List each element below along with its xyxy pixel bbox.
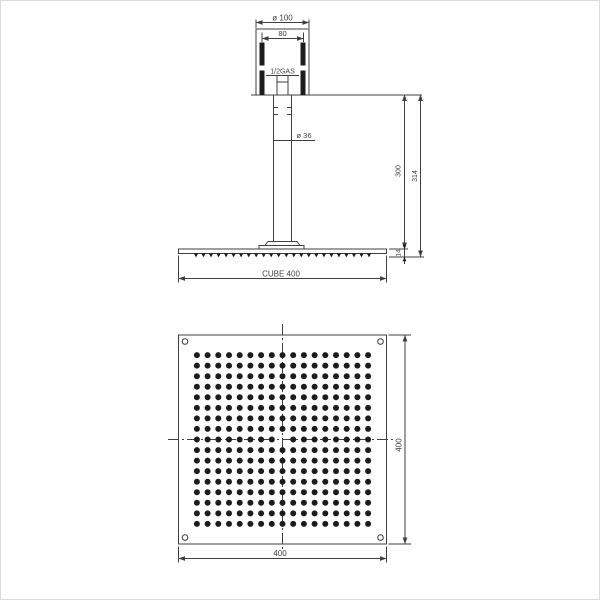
dim-plan-depth-label: 400 (395, 438, 404, 452)
nozzle-dot (280, 352, 286, 358)
nozzle-dot (312, 521, 318, 527)
nozzle-dot (215, 489, 221, 495)
nozzle-dot (226, 500, 232, 506)
nozzle-dot (322, 426, 328, 432)
nozzle-dot (258, 363, 264, 369)
nozzle-dot (290, 373, 296, 379)
nozzle-dot (194, 352, 200, 358)
nozzle-dot (365, 510, 371, 516)
nozzle-dot (322, 489, 328, 495)
nozzle-dot (205, 437, 211, 443)
nozzle-dot (290, 415, 296, 421)
nozzle-dot (344, 468, 350, 474)
nozzle-dot (301, 415, 307, 421)
nozzle-dot (312, 500, 318, 506)
solid-fills (194, 43, 407, 527)
nozzle-dot (247, 479, 253, 485)
nozzle-dot (269, 458, 275, 464)
nozzle-dot (290, 363, 296, 369)
nozzle-dot (322, 447, 328, 453)
nozzle-dot (333, 468, 339, 474)
nozzle-dot (333, 521, 339, 527)
nozzle-dot (290, 521, 296, 527)
nozzle-dot (290, 510, 296, 516)
nozzle-dot (333, 447, 339, 453)
nozzle-dot (354, 437, 360, 443)
nozzle-dot (269, 521, 275, 527)
nozzle-tooth (201, 254, 205, 258)
nozzle-dot (194, 500, 200, 506)
centerlines (168, 324, 395, 552)
nozzle-teeth-row (194, 254, 371, 258)
nozzle-dot (312, 437, 318, 443)
dim-overall-height-label: 314 (412, 170, 419, 182)
nozzle-dot (344, 415, 350, 421)
nozzle-dot (226, 447, 232, 453)
nozzle-dot (280, 415, 286, 421)
nozzle-dot (269, 447, 275, 453)
nozzle-dot (205, 405, 211, 411)
nozzle-dot (247, 521, 253, 527)
nozzle-tooth (194, 254, 198, 258)
nozzle-dot (322, 415, 328, 421)
nozzle-dot (290, 447, 296, 453)
nozzle-dot (215, 415, 221, 421)
nozzle-dot (344, 405, 350, 411)
nozzle-dot (365, 447, 371, 453)
nozzle-dot (322, 510, 328, 516)
nozzle-dot (290, 437, 296, 443)
nozzle-tooth (247, 254, 251, 258)
nozzle-dot (290, 458, 296, 464)
nozzle-dot (226, 479, 232, 485)
nozzle-dot (258, 373, 264, 379)
nozzle-dot (237, 373, 243, 379)
nozzle-dot (205, 426, 211, 432)
nozzle-tooth (299, 254, 303, 258)
nozzle-dot (226, 426, 232, 432)
nozzle-dot (247, 437, 253, 443)
nozzle-dot (194, 426, 200, 432)
nozzle-dot (312, 426, 318, 432)
nozzle-dot (258, 489, 264, 495)
nozzle-dot (365, 394, 371, 400)
nozzle-dot (333, 373, 339, 379)
nozzle-dot (215, 500, 221, 506)
nozzle-dot (226, 394, 232, 400)
nozzle-dot (247, 405, 253, 411)
nozzle-dot (344, 521, 350, 527)
nozzle-dot (269, 352, 275, 358)
nozzle-dot (237, 479, 243, 485)
nozzle-dot (205, 500, 211, 506)
nozzle-dot (194, 521, 200, 527)
nozzle-dot (194, 479, 200, 485)
nozzle-dot (258, 479, 264, 485)
nozzle-dot (280, 468, 286, 474)
nozzle-dot (301, 458, 307, 464)
nozzle-dot (280, 489, 286, 495)
nozzle-dot (290, 500, 296, 506)
nozzle-dot (269, 394, 275, 400)
nozzle-dot (322, 352, 328, 358)
product-name-label: CUBE 400 (262, 270, 300, 279)
nozzle-dot (237, 458, 243, 464)
nozzle-dot (354, 479, 360, 485)
corner-screw-hole (378, 535, 384, 541)
nozzle-dot (215, 352, 221, 358)
shower-plate-side (179, 249, 387, 254)
nozzle-dot (365, 426, 371, 432)
nozzle-dot (226, 373, 232, 379)
nozzle-dot (194, 415, 200, 421)
nozzle-tooth (329, 254, 333, 258)
nozzle-tooth (262, 254, 266, 258)
nozzle-dot (215, 363, 221, 369)
nozzle-dot (237, 426, 243, 432)
nozzle-dot (226, 352, 232, 358)
nozzle-dot (312, 384, 318, 390)
nozzle-dot (237, 394, 243, 400)
nozzle-dot (280, 510, 286, 516)
nozzle-dot (354, 468, 360, 474)
nozzle-dot (258, 394, 264, 400)
nozzle-dot (290, 489, 296, 495)
nozzle-tooth (217, 254, 221, 258)
nozzle-dot (215, 458, 221, 464)
nozzle-dot (269, 437, 275, 443)
nozzle-dot (237, 489, 243, 495)
nozzle-dot (301, 437, 307, 443)
nozzle-dot (226, 384, 232, 390)
nozzle-dot (280, 373, 286, 379)
nozzle-dot (301, 384, 307, 390)
nozzle-dot (333, 479, 339, 485)
nozzle-tooth (367, 254, 371, 258)
nozzle-dot (247, 363, 253, 369)
nozzle-dot (194, 384, 200, 390)
nozzle-dot (322, 394, 328, 400)
dim-thickness-label: 14 (396, 249, 403, 257)
nozzle-dot (269, 426, 275, 432)
nozzle-dot (344, 352, 350, 358)
nozzle-dot (365, 363, 371, 369)
nozzle-dot (312, 489, 318, 495)
nozzle-dot (247, 510, 253, 516)
nozzle-dot (344, 426, 350, 432)
nozzle-dot (269, 479, 275, 485)
nozzle-dot (194, 363, 200, 369)
nozzle-dot (215, 447, 221, 453)
nozzle-dot (226, 510, 232, 516)
nozzle-dot (322, 468, 328, 474)
nozzle-dot (237, 363, 243, 369)
nozzle-dot (205, 352, 211, 358)
technical-drawing-page: ø 100 80 1/2GAS ø 36 300 314 14 CUBE 400… (0, 0, 600, 600)
nozzle-dot (269, 510, 275, 516)
nozzle-dot (258, 510, 264, 516)
nozzle-dot (322, 405, 328, 411)
nozzle-dot (312, 405, 318, 411)
nozzle-dot (205, 521, 211, 527)
nozzle-dot (226, 489, 232, 495)
nozzle-dot (205, 415, 211, 421)
nozzle-dot (365, 500, 371, 506)
nozzle-dot (301, 510, 307, 516)
nozzle-dot (258, 415, 264, 421)
nozzle-dot (365, 373, 371, 379)
nozzle-dot (215, 394, 221, 400)
nozzle-dot (258, 468, 264, 474)
nozzle-dot (301, 405, 307, 411)
nozzle-dot (354, 447, 360, 453)
nozzle-dot (258, 426, 264, 432)
nozzle-dot (333, 489, 339, 495)
nozzle-dot (365, 415, 371, 421)
nozzle-dot (333, 510, 339, 516)
nozzle-dot (312, 447, 318, 453)
nozzle-tooth (254, 254, 258, 258)
nozzle-dot (354, 373, 360, 379)
nozzle-dot (247, 500, 253, 506)
nozzle-dot (322, 500, 328, 506)
nozzle-dot (237, 384, 243, 390)
nozzle-dot (301, 373, 307, 379)
nozzle-dot (290, 426, 296, 432)
nozzle-dot (344, 384, 350, 390)
nozzle-dot (247, 426, 253, 432)
nozzle-dot (247, 352, 253, 358)
nozzle-dot (280, 394, 286, 400)
nozzle-dot (333, 405, 339, 411)
nozzle-dot (194, 468, 200, 474)
nozzle-dot (258, 352, 264, 358)
nozzle-dot (365, 458, 371, 464)
nozzle-dot (312, 479, 318, 485)
nozzle-dot (354, 405, 360, 411)
nozzle-dot (237, 521, 243, 527)
nozzle-dot (269, 468, 275, 474)
nozzle-dot (333, 363, 339, 369)
nozzle-dot (354, 489, 360, 495)
nozzle-dot (237, 405, 243, 411)
nozzle-dot (205, 384, 211, 390)
nozzle-dot (205, 468, 211, 474)
nozzle-dot (322, 373, 328, 379)
nozzle-dot (280, 384, 286, 390)
nozzle-dot (258, 458, 264, 464)
cad-drawing-canvas: ø 100 80 1/2GAS ø 36 300 314 14 CUBE 400… (0, 0, 600, 600)
nozzle-dot (205, 394, 211, 400)
nozzle-dot (215, 510, 221, 516)
nozzle-dot (333, 415, 339, 421)
nozzle-tooth (337, 254, 341, 258)
nozzle-dot (365, 352, 371, 358)
nozzle-dot (354, 521, 360, 527)
dim-top-diameter-label: ø 100 (272, 14, 293, 23)
nozzle-dot (237, 437, 243, 443)
image-border (1, 1, 600, 600)
nozzle-dot (247, 394, 253, 400)
nozzle-dot (354, 458, 360, 464)
nozzle-dot (354, 394, 360, 400)
nozzle-tooth (284, 254, 288, 258)
nozzle-tooth (277, 254, 281, 258)
nozzle-dot (280, 458, 286, 464)
nozzle-dot (247, 447, 253, 453)
nozzle-dot (344, 363, 350, 369)
nozzle-dot (247, 458, 253, 464)
nozzle-dot (205, 447, 211, 453)
nozzle-dot (322, 458, 328, 464)
nozzle-dot (312, 373, 318, 379)
nozzle-dot (322, 521, 328, 527)
nozzle-dot (344, 394, 350, 400)
nozzle-dot (312, 468, 318, 474)
nozzle-dot (237, 447, 243, 453)
corner-screw-hole (378, 339, 384, 345)
nozzle-dot (237, 415, 243, 421)
nozzle-dot (344, 479, 350, 485)
nozzle-dot (354, 384, 360, 390)
nozzle-dot (258, 437, 264, 443)
nozzle-dot (354, 363, 360, 369)
nozzle-dot (333, 394, 339, 400)
nozzle-dot (205, 363, 211, 369)
nozzle-tooth (307, 254, 311, 258)
nozzle-dot (344, 510, 350, 516)
nozzle-dot (247, 489, 253, 495)
nozzle-dot (226, 437, 232, 443)
nozzle-tooth (344, 254, 348, 258)
nozzle-dot (290, 405, 296, 411)
nozzle-dot (269, 384, 275, 390)
nozzle-tooth (239, 254, 243, 258)
nozzle-dot (333, 458, 339, 464)
nozzle-dot (354, 352, 360, 358)
nozzle-tooth (359, 254, 363, 258)
nozzle-dot (301, 352, 307, 358)
nozzle-dot (322, 479, 328, 485)
nozzle-tooth (209, 254, 213, 258)
nozzle-dot (344, 437, 350, 443)
nozzle-tooth (322, 254, 326, 258)
nozzle-dot (247, 415, 253, 421)
nozzle-dot (215, 437, 221, 443)
nozzle-dot (312, 394, 318, 400)
nozzle-dot (194, 458, 200, 464)
nozzle-tooth (224, 254, 228, 258)
nozzle-dot (301, 426, 307, 432)
nozzle-dot (301, 500, 307, 506)
nozzle-dot (194, 510, 200, 516)
nozzle-tooth (314, 254, 318, 258)
nozzle-dot (215, 468, 221, 474)
nozzle-dot (344, 373, 350, 379)
nozzle-dot (333, 352, 339, 358)
nozzle-dot (365, 489, 371, 495)
nozzle-dot (194, 405, 200, 411)
nozzle-dot (365, 384, 371, 390)
nozzle-dot (290, 468, 296, 474)
thread-size-label: 1/2GAS (270, 69, 295, 76)
nozzle-dot (344, 500, 350, 506)
nozzle-dot (301, 447, 307, 453)
nozzle-dot (290, 384, 296, 390)
supply-pipe (274, 95, 292, 242)
nozzle-dot (354, 500, 360, 506)
nozzle-dot (290, 394, 296, 400)
nozzle-dot (205, 510, 211, 516)
nozzle-dot (237, 510, 243, 516)
nozzle-dot (258, 521, 264, 527)
nozzle-dot (290, 352, 296, 358)
nozzle-dot (301, 468, 307, 474)
dim-plan-width-label: 400 (273, 549, 287, 558)
nozzle-dot (280, 500, 286, 506)
nozzle-dot (258, 500, 264, 506)
nozzle-dot (258, 447, 264, 453)
nozzle-dot (205, 489, 211, 495)
nozzle-dot (344, 447, 350, 453)
nozzle-dot (312, 510, 318, 516)
nozzle-dot (226, 405, 232, 411)
nozzle-dot (226, 521, 232, 527)
nozzle-dot (354, 426, 360, 432)
nozzle-dot (215, 373, 221, 379)
nozzle-dot (237, 352, 243, 358)
nozzle-dot (365, 468, 371, 474)
nozzle-dot (322, 363, 328, 369)
nozzle-dot (344, 489, 350, 495)
dim-drop-height-label: 300 (396, 165, 403, 177)
nozzle-dot (226, 415, 232, 421)
nozzle-dot (205, 373, 211, 379)
nozzle-dot (280, 479, 286, 485)
nozzle-dot (301, 521, 307, 527)
nozzle-dot (215, 384, 221, 390)
nozzle-tooth (352, 254, 356, 258)
nozzle-dot (269, 489, 275, 495)
nozzle-dot (215, 479, 221, 485)
nozzle-dot (354, 510, 360, 516)
nozzle-dot (290, 479, 296, 485)
nozzle-dot (333, 426, 339, 432)
nozzle-dot (215, 521, 221, 527)
nozzle-dot (215, 405, 221, 411)
nozzle-dot (365, 437, 371, 443)
nozzle-dot (258, 405, 264, 411)
nozzle-dot (226, 468, 232, 474)
nozzle-dot (269, 373, 275, 379)
nozzle-dot (269, 363, 275, 369)
nozzle-dot (194, 437, 200, 443)
pipe-diameter-label: ø 36 (296, 131, 311, 140)
nozzle-dot (312, 415, 318, 421)
nozzle-dot (237, 500, 243, 506)
nozzle-dot (312, 352, 318, 358)
nozzle-dot (354, 415, 360, 421)
pipe-flange (259, 242, 304, 250)
nozzle-dot (215, 426, 221, 432)
nozzle-dot (333, 384, 339, 390)
nozzle-dot (322, 437, 328, 443)
nozzle-dot (344, 458, 350, 464)
nozzle-dot (247, 384, 253, 390)
nozzle-dot (205, 479, 211, 485)
nozzle-dot (205, 458, 211, 464)
nozzle-dot (333, 500, 339, 506)
